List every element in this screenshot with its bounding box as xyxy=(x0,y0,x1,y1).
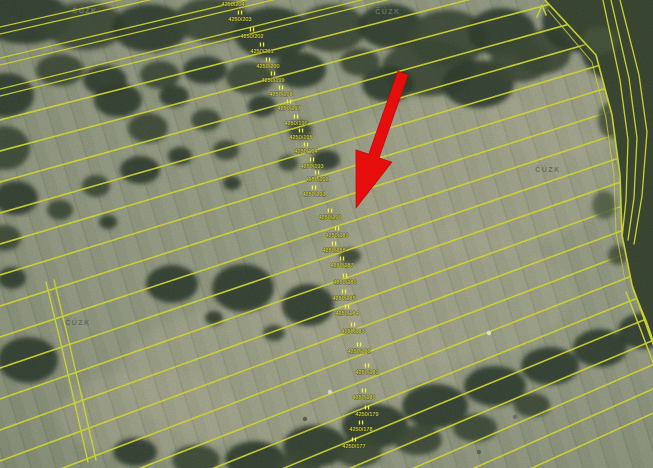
parcel-number-label: 4250/201 xyxy=(250,49,273,55)
ground-object-dot xyxy=(513,415,517,419)
parcel-number-label: 4250/185 xyxy=(332,296,355,302)
parcel-number-label: 4250/179 xyxy=(355,412,378,418)
parcel-number-label: 4250/182 xyxy=(347,349,370,355)
ground-object-dot xyxy=(487,331,491,335)
parcel-number-label: 4250/199 xyxy=(261,78,284,84)
cuzk-watermark-text: ČÚZK xyxy=(535,165,560,174)
parcel-number-label: 4250/187 xyxy=(330,263,353,269)
ground-object-dot xyxy=(328,390,332,394)
parcel-number-label: 4250/202 xyxy=(240,34,263,40)
parcel-number-label: 4250/177 xyxy=(342,444,365,450)
parcel-number-label: 4250/195 xyxy=(289,135,312,141)
map-viewport[interactable]: ČÚZKČÚZKČÚZKČÚZK 4250/2044250/2034250/20… xyxy=(0,0,653,468)
ground-object-dot xyxy=(303,417,307,421)
parcel-number-label: 4250/204 xyxy=(221,2,244,8)
parcel-number-label: 4250/192 xyxy=(305,177,328,183)
parcel-number-label: 4250/197 xyxy=(277,106,300,112)
parcel-number-label: 4250/188 xyxy=(322,248,345,254)
cuzk-watermark-text: ČÚZK xyxy=(375,7,400,16)
parcel-number-label: 4250/183 xyxy=(341,329,364,335)
parcel-number-label: 4250/198 xyxy=(269,92,292,98)
parcel-number-label: 4250/186 xyxy=(333,280,356,286)
parcel-number-label: 4250/184 xyxy=(335,311,358,317)
parcel-number-label: 4250/191 xyxy=(302,192,325,198)
parcel-number-label: 4250/181 xyxy=(355,370,378,376)
parcel-label: 4250/204 xyxy=(221,0,244,8)
cuzk-watermark-text: ČÚZK xyxy=(72,6,97,15)
parcel-number-label: 4250/189 xyxy=(325,233,348,239)
parcel-number-label: 4250/180 xyxy=(352,395,375,401)
parcel-number-label: 4250/178 xyxy=(349,427,372,433)
ground-object-dot xyxy=(477,450,481,454)
parcel-number-label: 4250/200 xyxy=(256,64,279,70)
parcel-number-label: 4250/194 xyxy=(294,149,317,155)
parcel-number-label: 4250/196 xyxy=(284,121,307,127)
cuzk-watermark-text: ČÚZK xyxy=(65,318,90,327)
parcel-number-label: 4250/193 xyxy=(300,164,323,170)
parcel-number-label: 4250/190 xyxy=(318,215,341,221)
parcel-number-label: 4250/203 xyxy=(228,17,251,23)
aerial-cadastral-map[interactable]: ČÚZKČÚZKČÚZKČÚZK 4250/2044250/2034250/20… xyxy=(0,0,653,468)
